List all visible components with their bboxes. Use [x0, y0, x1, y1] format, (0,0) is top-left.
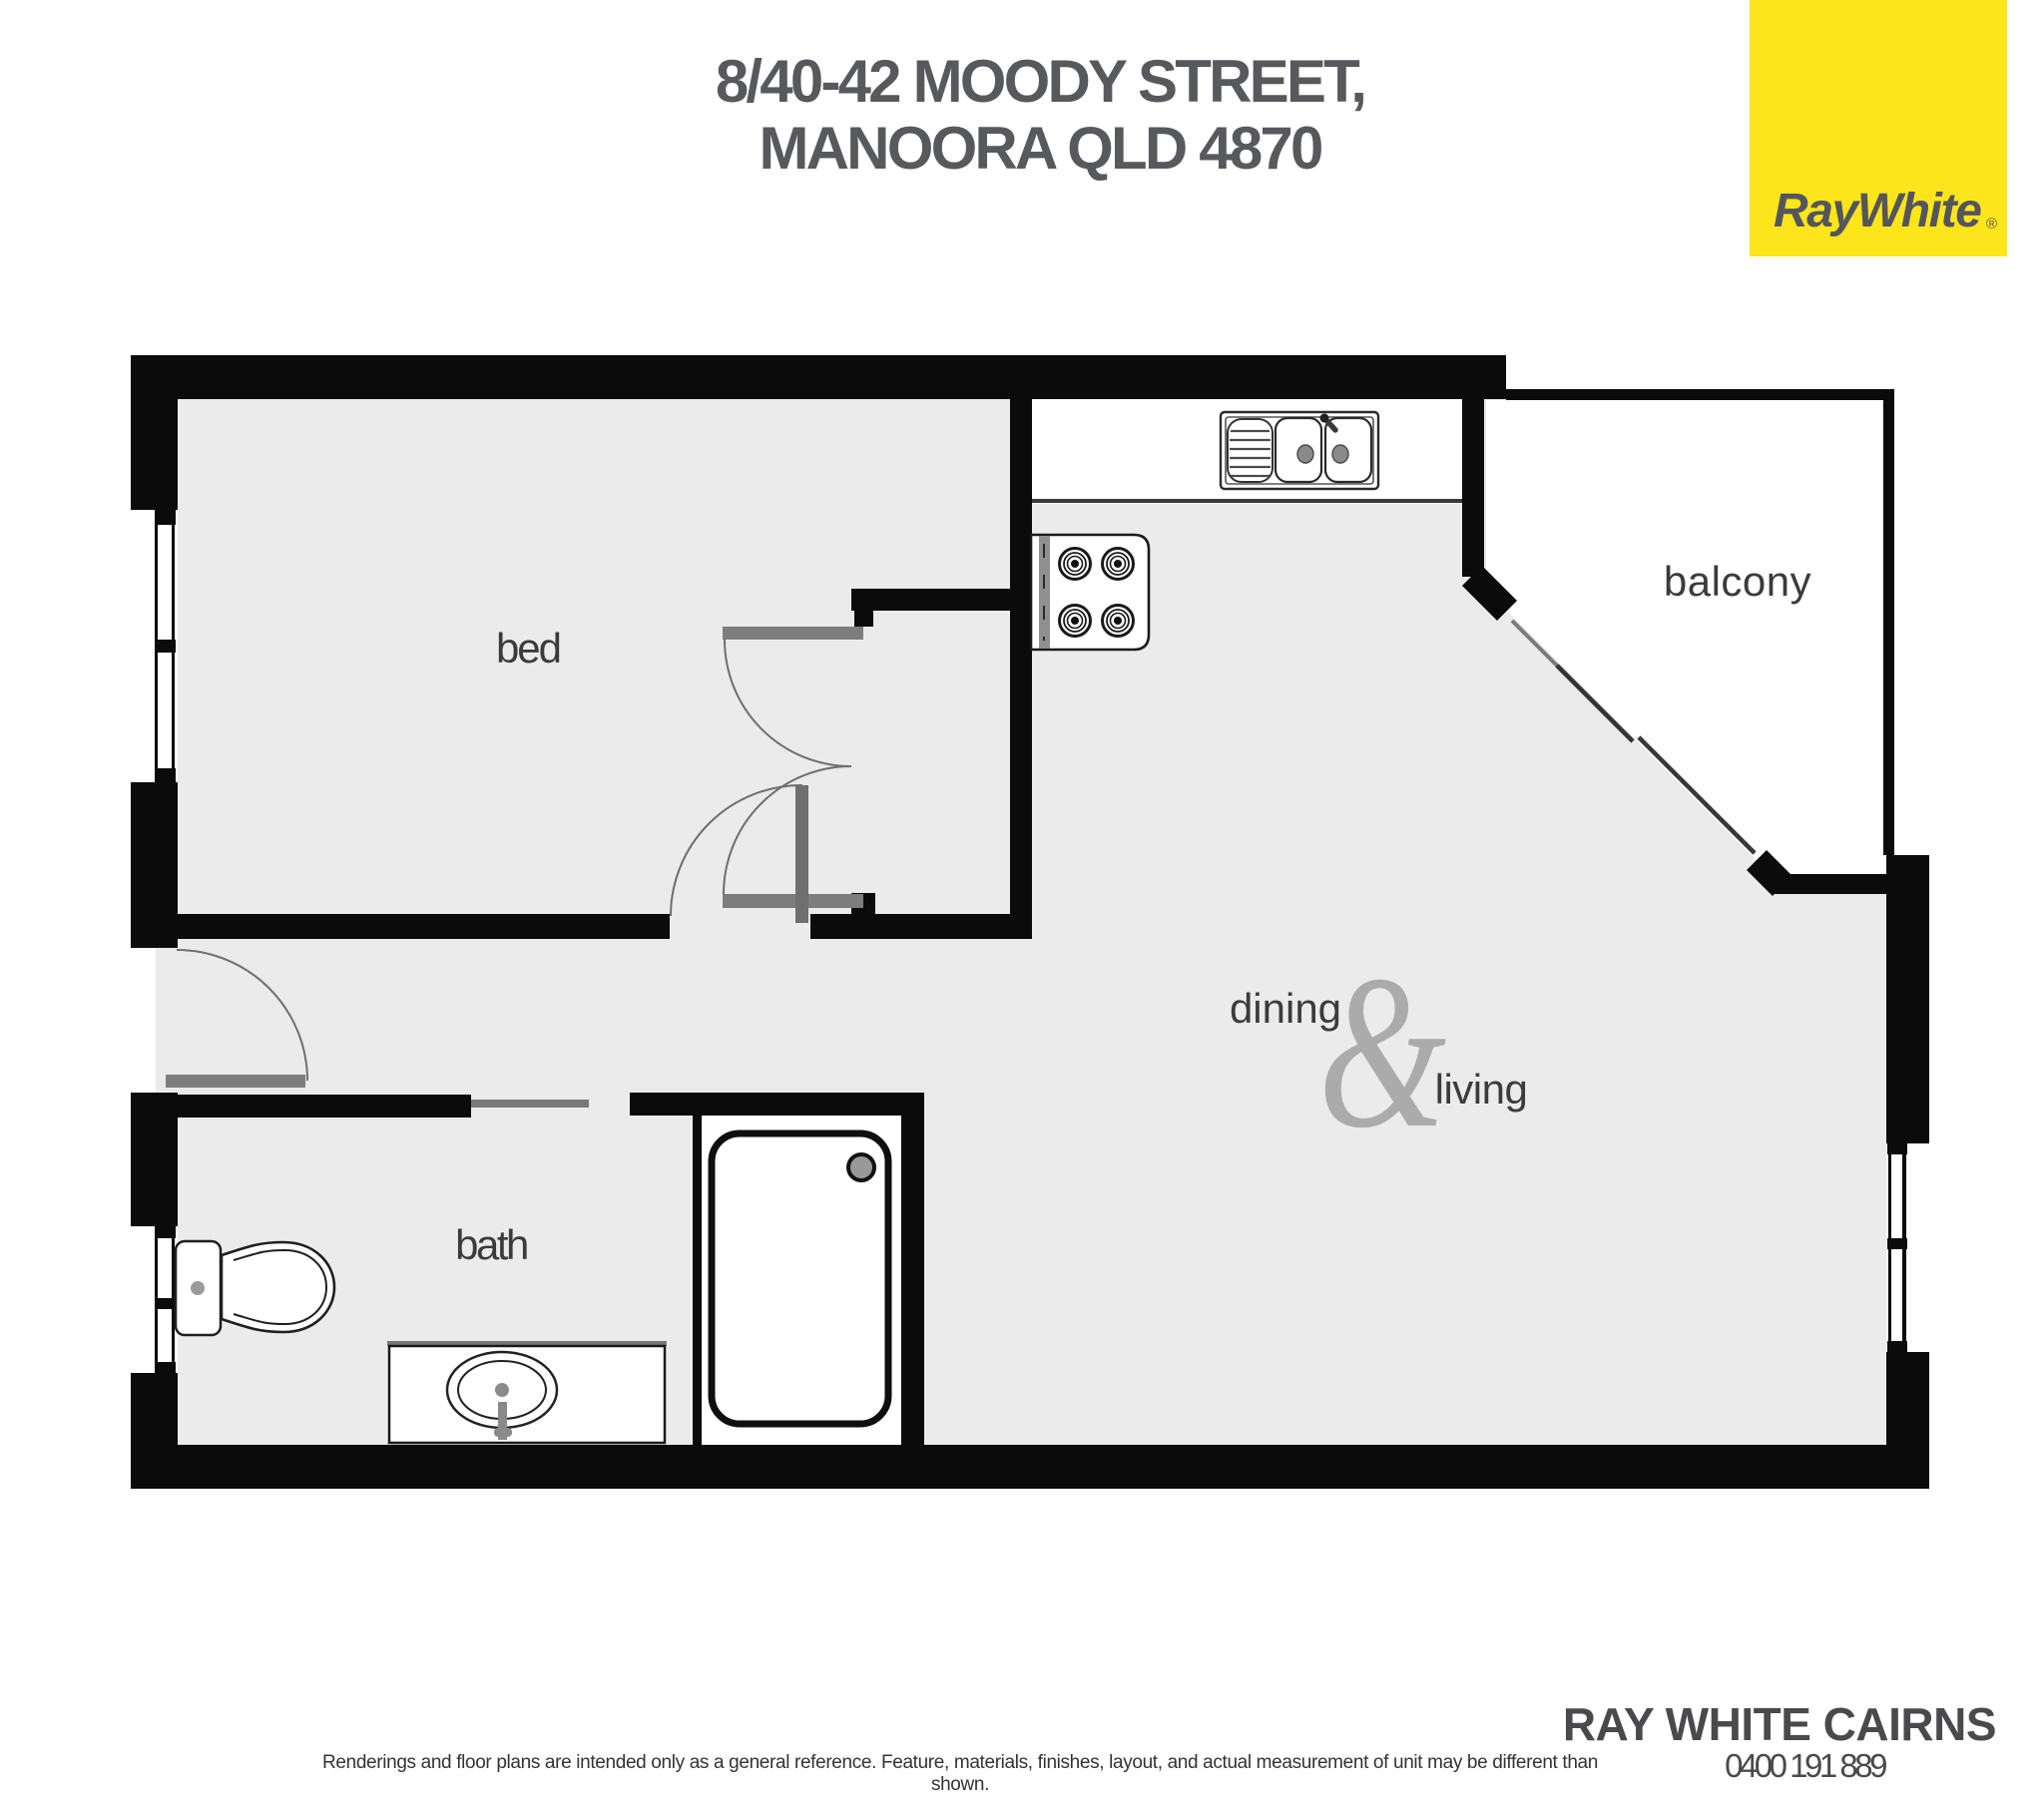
svg-text:RayWhite: RayWhite — [1774, 185, 1981, 237]
svg-text:&: & — [1318, 931, 1446, 1173]
svg-text:bed: bed — [496, 625, 560, 672]
svg-text:8/40-42 MOODY STREET,: 8/40-42 MOODY STREET, — [716, 48, 1364, 115]
svg-text:shown.: shown. — [931, 1774, 989, 1795]
svg-text:bath: bath — [455, 1221, 527, 1268]
svg-text:RAY WHITE CAIRNS: RAY WHITE CAIRNS — [1563, 1698, 1996, 1750]
svg-text:MANOORA QLD 4870: MANOORA QLD 4870 — [759, 115, 1321, 182]
svg-text:Renderings and floor plans are: Renderings and floor plans are intended … — [322, 1752, 1598, 1773]
svg-text:balcony: balcony — [1664, 558, 1811, 605]
svg-text:0400 191 889: 0400 191 889 — [1725, 1747, 1886, 1784]
svg-text:®: ® — [1986, 216, 1997, 232]
svg-text:living: living — [1435, 1066, 1528, 1113]
